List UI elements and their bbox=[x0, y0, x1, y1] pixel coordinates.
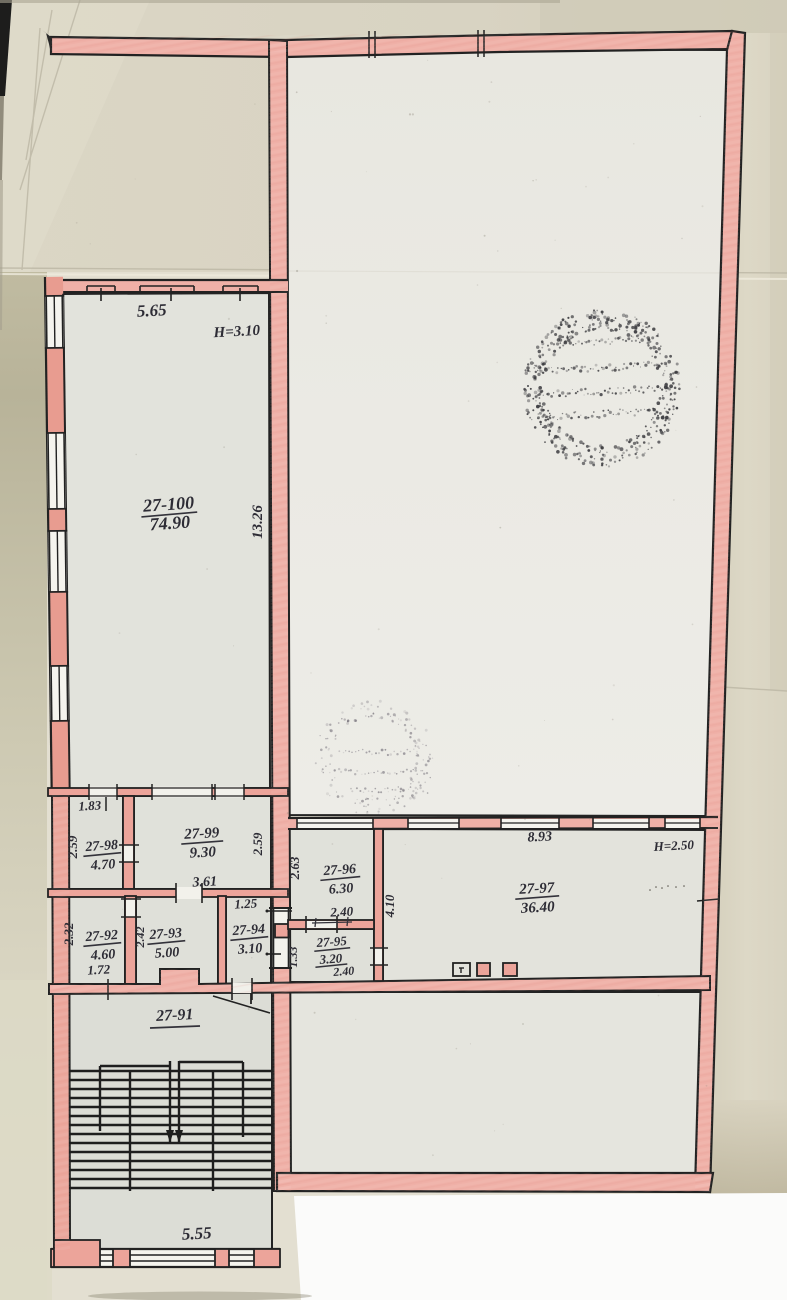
svg-text:27-97: 27-97 bbox=[518, 880, 555, 898]
svg-text:5.00: 5.00 bbox=[154, 945, 179, 962]
svg-text:74.90: 74.90 bbox=[149, 512, 191, 535]
svg-text:36.40: 36.40 bbox=[520, 899, 556, 917]
svg-text:H=3.10: H=3.10 bbox=[212, 323, 261, 341]
svg-text:2.63: 2.63 bbox=[287, 856, 302, 880]
svg-text:3.61: 3.61 bbox=[191, 874, 217, 890]
svg-text:5.65: 5.65 bbox=[136, 300, 167, 321]
svg-text:3.10: 3.10 bbox=[236, 941, 262, 958]
svg-text:4.10: 4.10 bbox=[382, 894, 397, 918]
svg-text:2.40: 2.40 bbox=[332, 964, 355, 980]
svg-text:1.72: 1.72 bbox=[87, 961, 111, 977]
svg-text:2.42: 2.42 bbox=[133, 927, 147, 949]
svg-text:H=2.50: H=2.50 bbox=[652, 837, 694, 854]
svg-text:4.70: 4.70 bbox=[89, 857, 115, 874]
svg-text:2.40: 2.40 bbox=[329, 903, 354, 919]
svg-text:27-99: 27-99 bbox=[183, 825, 220, 843]
svg-text:1.83: 1.83 bbox=[78, 797, 102, 813]
svg-text:5.55: 5.55 bbox=[181, 1223, 212, 1244]
svg-text:2.59: 2.59 bbox=[65, 835, 80, 859]
svg-text:13.26: 13.26 bbox=[250, 505, 266, 539]
svg-text:1.33: 1.33 bbox=[286, 947, 300, 968]
svg-text:27-98: 27-98 bbox=[84, 838, 119, 855]
svg-text:8.93: 8.93 bbox=[527, 829, 552, 845]
svg-text:2.59: 2.59 bbox=[250, 832, 265, 856]
svg-text:9.30: 9.30 bbox=[189, 844, 217, 861]
svg-text:2.32: 2.32 bbox=[61, 922, 76, 946]
svg-text:27-93: 27-93 bbox=[148, 926, 183, 943]
svg-text:1.25: 1.25 bbox=[234, 895, 258, 911]
svg-text:27-95: 27-95 bbox=[315, 933, 348, 950]
svg-text:27-92: 27-92 bbox=[84, 928, 119, 945]
svg-text:27-94: 27-94 bbox=[231, 922, 266, 939]
svg-text:27-91: 27-91 bbox=[155, 1006, 194, 1025]
svg-text:6.30: 6.30 bbox=[328, 881, 353, 898]
svg-text:27-96: 27-96 bbox=[322, 862, 357, 879]
